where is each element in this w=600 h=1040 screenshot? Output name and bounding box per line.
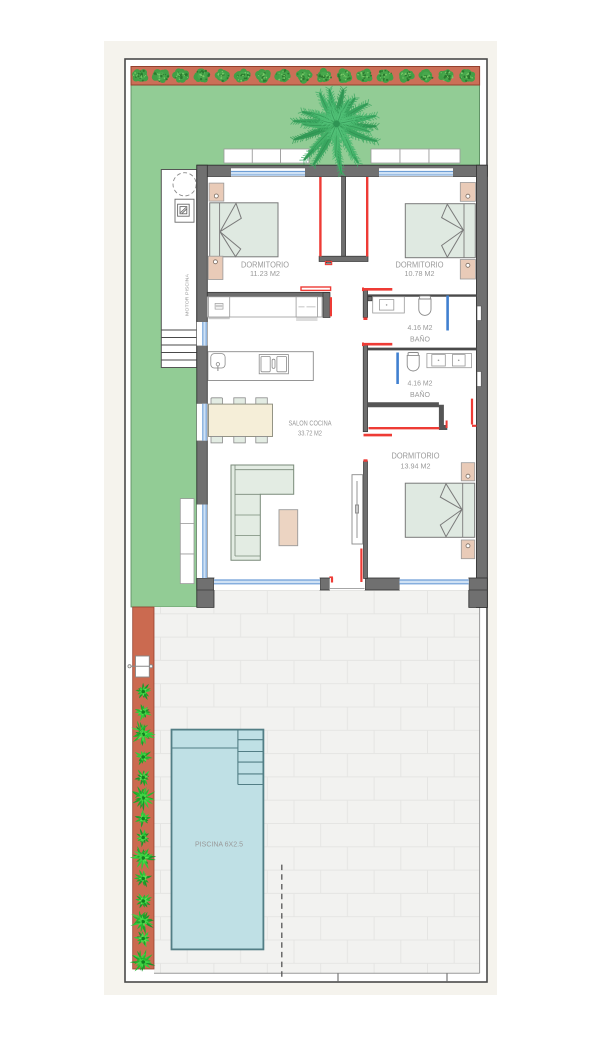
svg-text:DORMITORIO: DORMITORIO	[396, 261, 444, 270]
svg-text:10.78 M2: 10.78 M2	[405, 271, 435, 278]
svg-text:33.72 M2: 33.72 M2	[298, 431, 322, 438]
svg-text:DORMITORIO: DORMITORIO	[392, 452, 440, 461]
svg-text:PISCINA 6X2.5: PISCINA 6X2.5	[195, 842, 243, 849]
svg-text:DORMITORIO: DORMITORIO	[241, 261, 289, 270]
svg-text:4.16 M2: 4.16 M2	[408, 325, 433, 332]
svg-text:MOTOR PISCINA: MOTOR PISCINA	[185, 273, 191, 316]
svg-text:13.94 M2: 13.94 M2	[401, 464, 431, 471]
svg-text:SALON COCINA: SALON COCINA	[289, 419, 332, 428]
svg-text:4.16 M2: 4.16 M2	[408, 381, 433, 388]
svg-text:BAÑO: BAÑO	[410, 335, 431, 344]
svg-text:BAÑO: BAÑO	[410, 390, 431, 399]
svg-text:11.23 M2: 11.23 M2	[250, 271, 280, 278]
